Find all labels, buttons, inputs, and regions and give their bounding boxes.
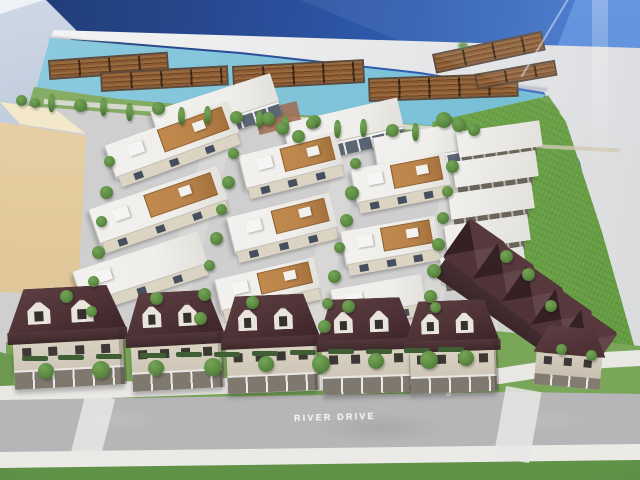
porch (410, 373, 497, 393)
dormer-window (427, 322, 435, 332)
facade-window (370, 201, 380, 210)
heritage-house (318, 297, 415, 395)
house-window (479, 353, 488, 362)
tree (88, 276, 99, 287)
tree (194, 312, 207, 325)
house-body (322, 349, 414, 395)
house-window (48, 346, 57, 355)
model-photo: RIVER DRIVE (0, 0, 640, 480)
heritage-house (222, 293, 320, 394)
dormer-window (34, 311, 44, 322)
dormer-window (244, 318, 252, 328)
hedge (58, 355, 84, 360)
facade-window (249, 249, 259, 258)
hedge (140, 353, 166, 358)
tree (38, 363, 54, 379)
tree (500, 250, 513, 263)
tree (148, 360, 164, 376)
hedge (290, 350, 316, 355)
tree (276, 122, 289, 135)
house-window (563, 358, 572, 367)
dormer-window (183, 313, 191, 323)
house-window (351, 354, 360, 363)
tree (222, 176, 235, 189)
facade-window (397, 196, 407, 205)
facade-window (118, 237, 129, 247)
tree (246, 296, 259, 309)
tree (350, 158, 361, 169)
house-window (75, 345, 84, 354)
tree (292, 130, 305, 143)
tree (258, 356, 274, 372)
facade-window (205, 145, 216, 155)
tree (92, 246, 105, 259)
tree (96, 216, 107, 227)
facade-window (279, 242, 289, 251)
house-window (583, 360, 592, 369)
poplar-tree (360, 119, 367, 137)
house-window (437, 355, 446, 364)
porch (227, 372, 318, 394)
tree (442, 186, 453, 197)
hip-roof (220, 293, 320, 340)
tree (86, 306, 97, 317)
tree (198, 288, 211, 301)
porch (323, 374, 414, 395)
tree (204, 358, 222, 376)
house-window (277, 351, 286, 360)
hedge (176, 352, 202, 357)
facade-window (192, 212, 203, 222)
dormer-window (279, 316, 287, 326)
tree (556, 344, 567, 355)
tree (436, 112, 452, 128)
dormer-window (339, 321, 347, 331)
tree (342, 300, 355, 313)
tree (522, 268, 535, 281)
facade-window (172, 274, 183, 283)
poplar-tree (412, 123, 419, 141)
tree (262, 112, 275, 125)
tree (104, 156, 115, 167)
tree (427, 264, 441, 278)
tree (334, 242, 345, 253)
tree (60, 290, 73, 303)
tree (430, 302, 441, 313)
tree (345, 186, 359, 200)
hedge (214, 352, 240, 357)
tree (92, 361, 110, 379)
hedge (22, 356, 48, 361)
hedge (328, 349, 354, 354)
hedge (96, 354, 122, 359)
tree (420, 351, 438, 369)
house-window (101, 343, 110, 352)
facade-window (316, 172, 326, 181)
tree (230, 111, 243, 124)
tree (322, 298, 333, 309)
hip-roof (404, 299, 499, 343)
tree (368, 353, 384, 369)
facade-window (413, 254, 423, 262)
tree (468, 124, 480, 136)
dormer-window (461, 321, 469, 331)
poplar-tree (204, 106, 211, 124)
heritage-house (126, 289, 225, 392)
tree (16, 95, 27, 106)
tree (432, 238, 445, 251)
tree (386, 124, 399, 137)
tree (446, 160, 459, 173)
facade-window (424, 191, 434, 200)
poplar-tree (334, 120, 341, 138)
tree (210, 232, 223, 245)
facade-window (169, 158, 180, 168)
tree (306, 118, 317, 129)
house-window (329, 355, 338, 364)
tree (228, 148, 239, 159)
scene: RIVER DRIVE (0, 0, 640, 480)
tree (100, 186, 113, 199)
tree (150, 292, 163, 305)
house-window (543, 356, 552, 365)
tree (437, 212, 449, 224)
poplar-tree (126, 103, 133, 121)
tree (328, 270, 341, 283)
facade-window (155, 224, 166, 234)
tree (216, 204, 227, 215)
tree (318, 320, 331, 333)
poplar-tree (178, 107, 185, 125)
facade-window (133, 171, 144, 181)
tree (458, 350, 474, 366)
tree (204, 260, 215, 271)
tree (152, 102, 165, 115)
facade-window (308, 234, 318, 243)
tree (452, 118, 466, 132)
poplar-tree (100, 98, 107, 116)
house-window (203, 347, 212, 356)
dormer-window (148, 315, 156, 325)
facade-window (359, 264, 369, 272)
road-label: RIVER DRIVE (294, 411, 376, 423)
rim-smudge (458, 42, 468, 49)
tree (312, 355, 330, 373)
facade-window (288, 179, 298, 188)
tree (545, 300, 557, 312)
tree (586, 350, 597, 361)
tree (30, 98, 40, 108)
poplar-tree (48, 94, 55, 112)
dormer-window (375, 319, 383, 329)
facade-window (260, 185, 270, 194)
facade-window (386, 259, 396, 267)
tree (74, 99, 87, 112)
tree (340, 214, 353, 227)
house-window (394, 353, 403, 362)
